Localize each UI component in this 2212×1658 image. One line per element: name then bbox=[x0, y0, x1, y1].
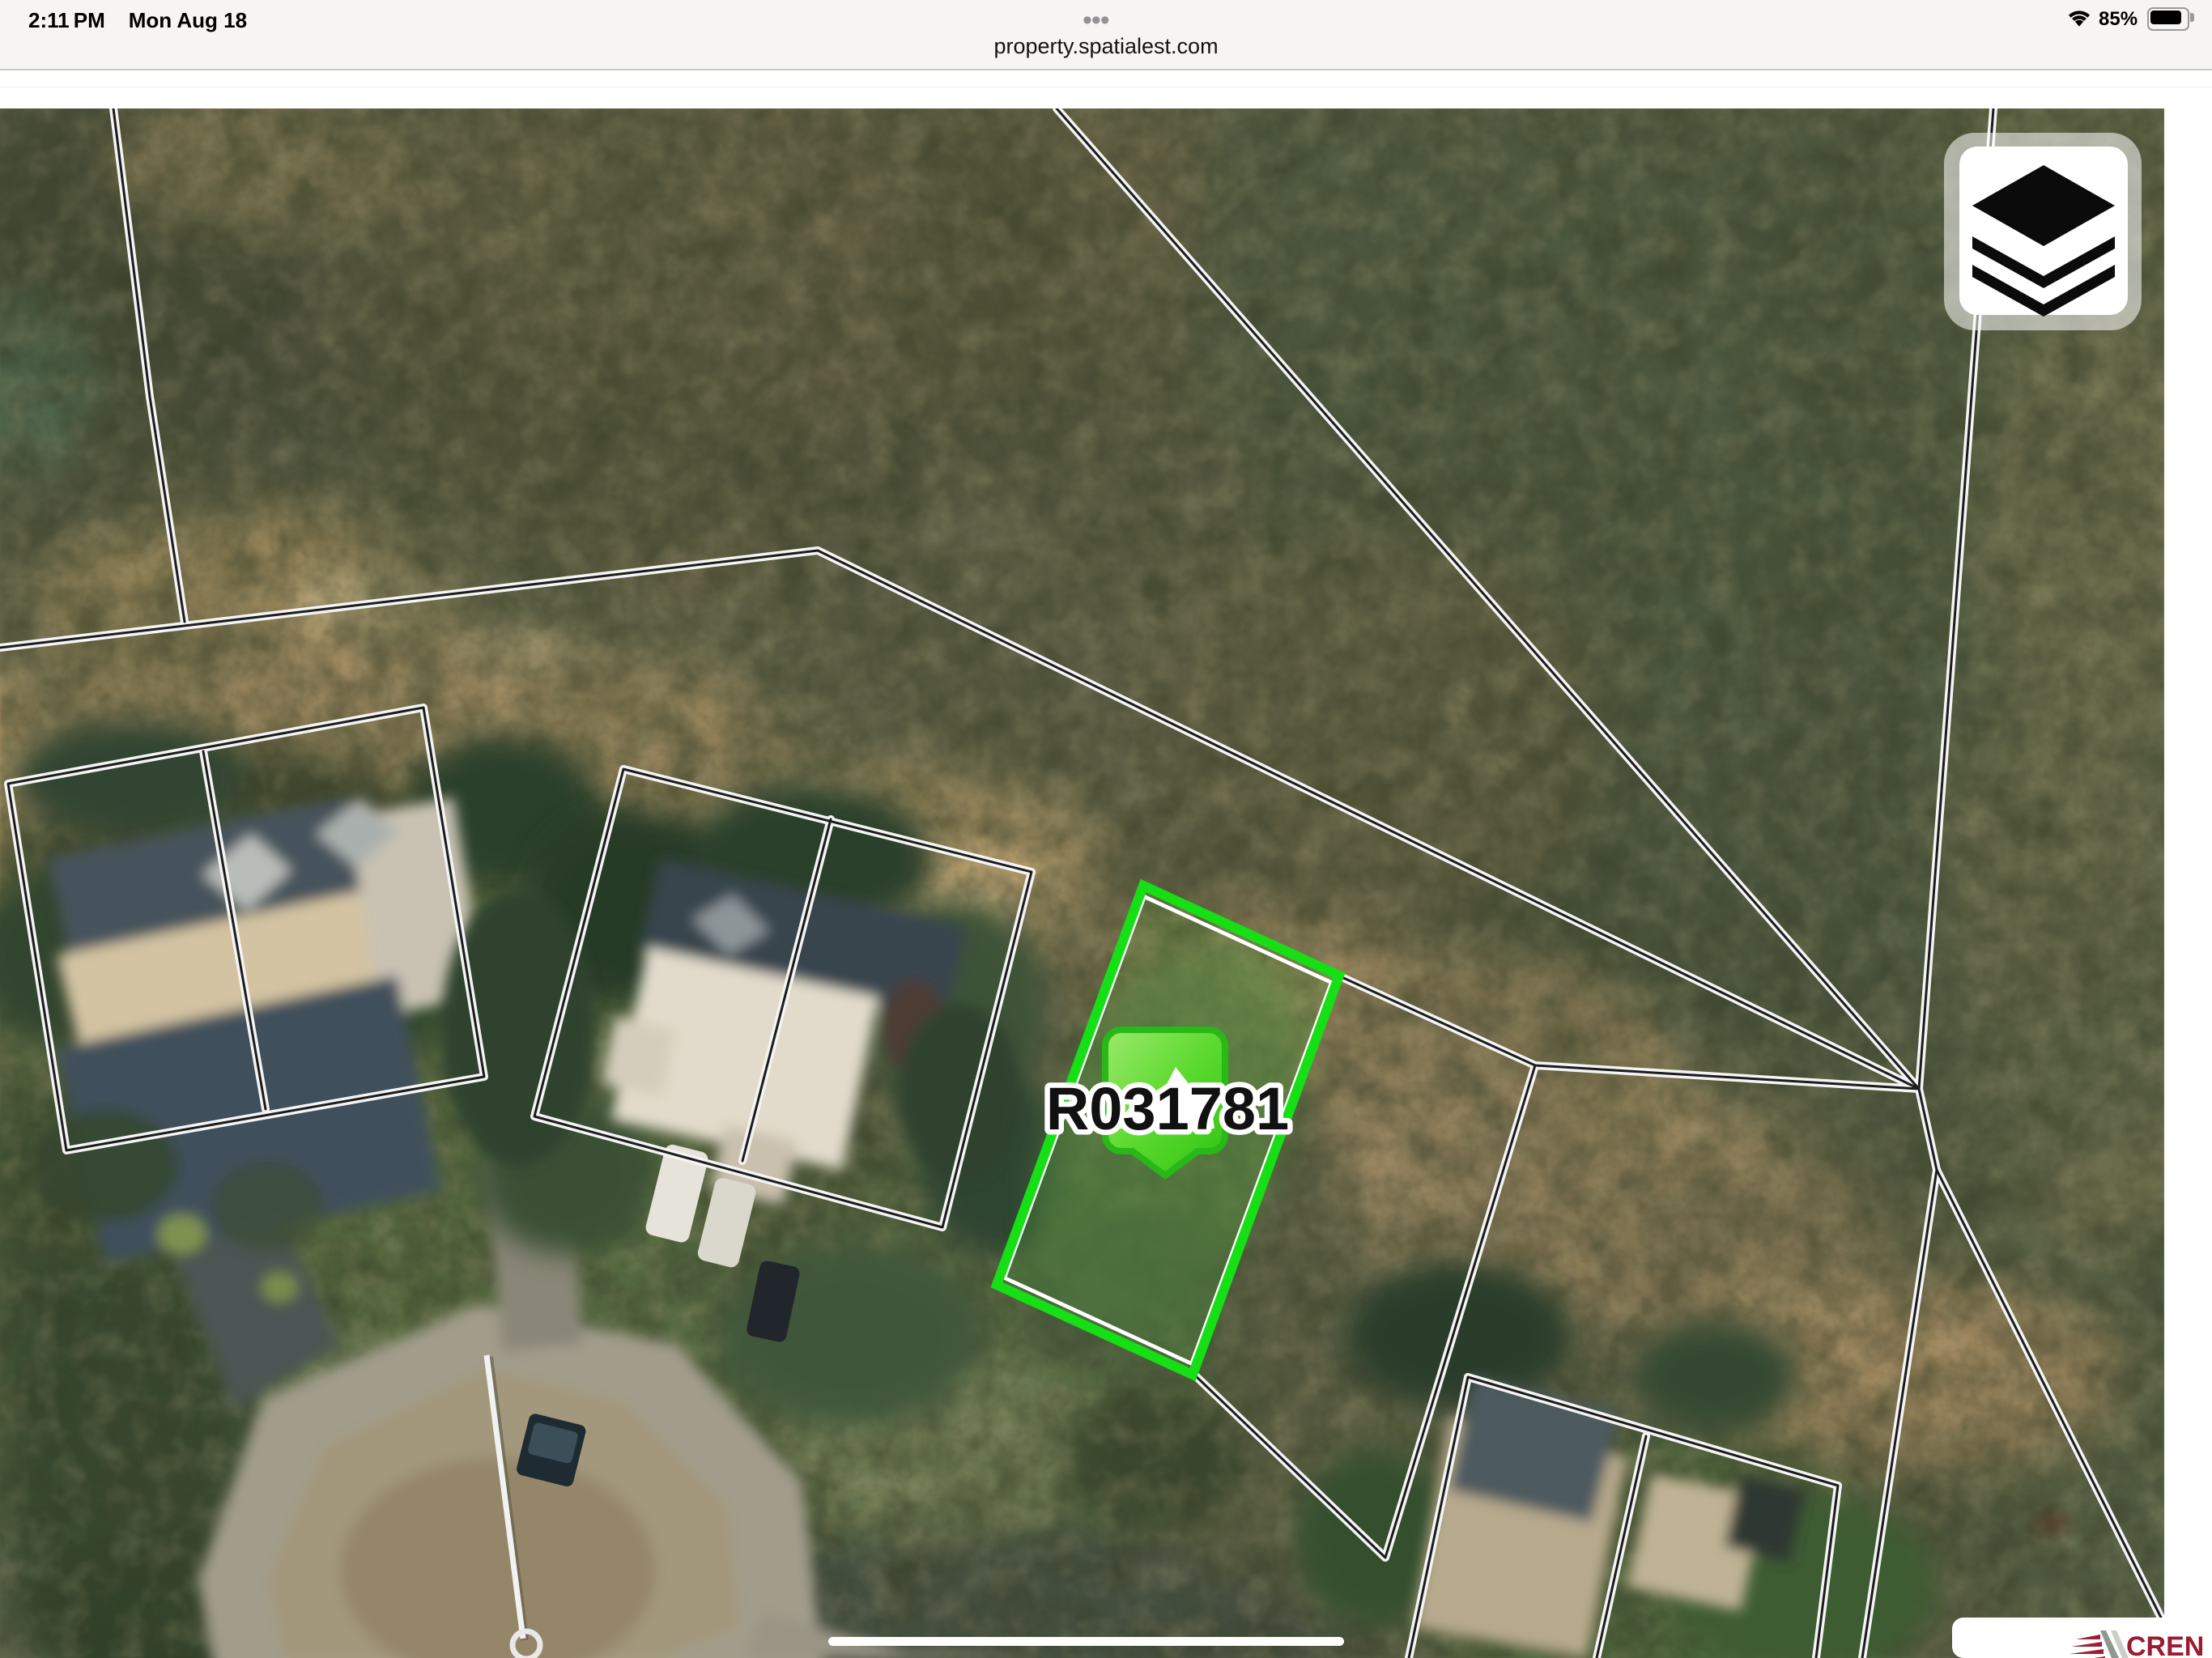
svg-text:R031781: R031781 bbox=[1046, 1075, 1289, 1142]
svg-text:CREN: CREN bbox=[2126, 1631, 2204, 1658]
